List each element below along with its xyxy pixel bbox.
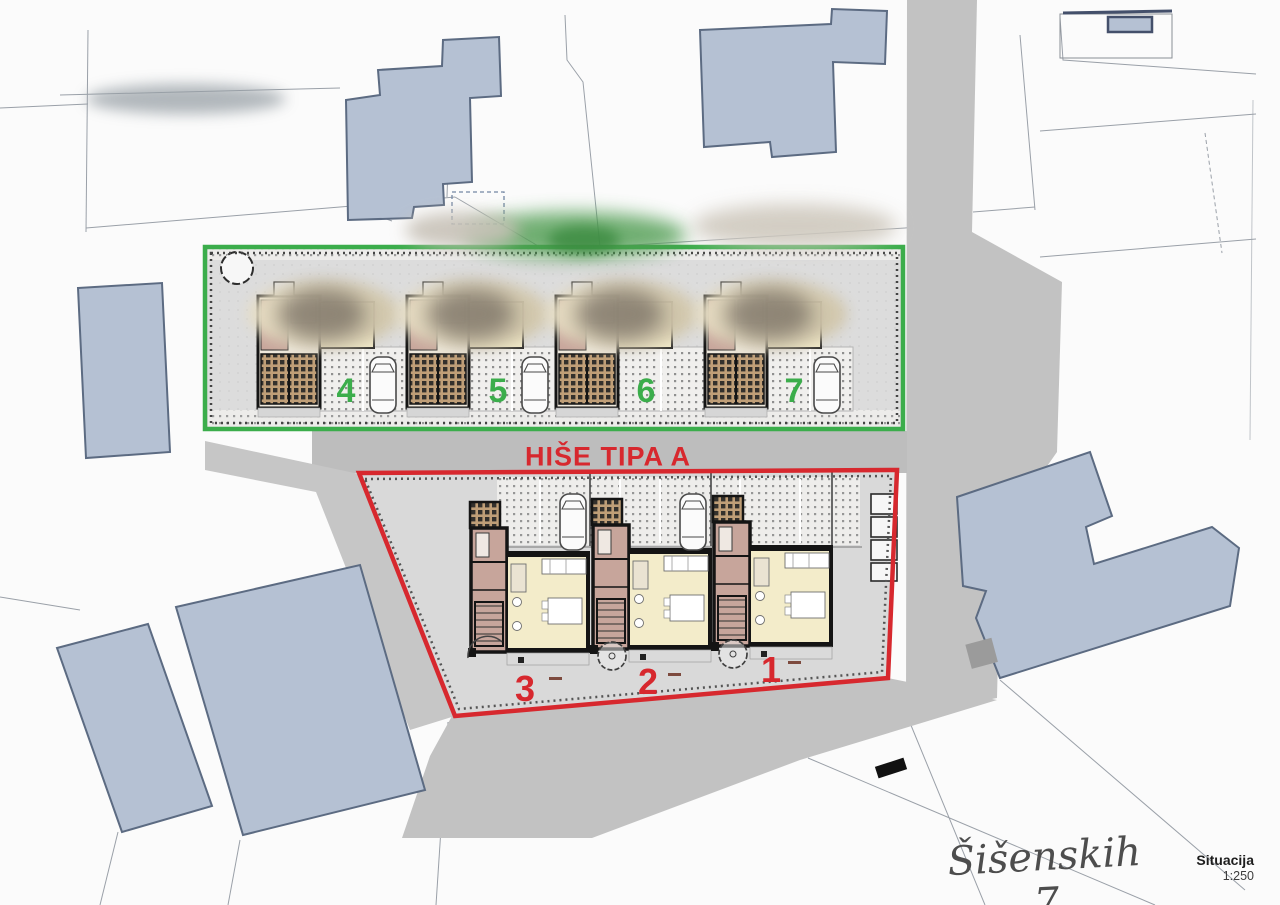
tree-icon — [221, 252, 253, 284]
title-block: Situacija 1:250 — [1146, 852, 1254, 883]
site-plan: 4 5 6 7 3 2 1 HIŠE TIPA A Šišenskih 7 Si… — [0, 0, 1280, 905]
tree-icon — [719, 640, 747, 668]
number-dash — [788, 661, 801, 664]
house-number-4: 4 — [337, 374, 356, 408]
tree-icon — [598, 642, 626, 670]
house-number-5: 5 — [489, 374, 508, 408]
car-icon — [680, 494, 706, 550]
drawing-title: Situacija — [1146, 852, 1254, 868]
house-number-1: 1 — [761, 652, 781, 688]
house-number-3: 3 — [515, 671, 535, 707]
zone-type-a-label: HIŠE TIPA A — [525, 442, 691, 473]
drawing-scale: 1:250 — [1146, 869, 1254, 883]
house-number-6: 6 — [637, 374, 656, 408]
architect-signature: Šišenskih 7 — [936, 828, 1156, 905]
car-icon — [370, 357, 396, 413]
house-number-2: 2 — [638, 664, 658, 700]
car-icon — [814, 357, 840, 413]
car-icon — [560, 494, 586, 550]
number-dash — [549, 677, 562, 680]
number-dash — [668, 673, 681, 676]
car-icon — [522, 357, 548, 413]
house-number-7: 7 — [785, 374, 804, 408]
